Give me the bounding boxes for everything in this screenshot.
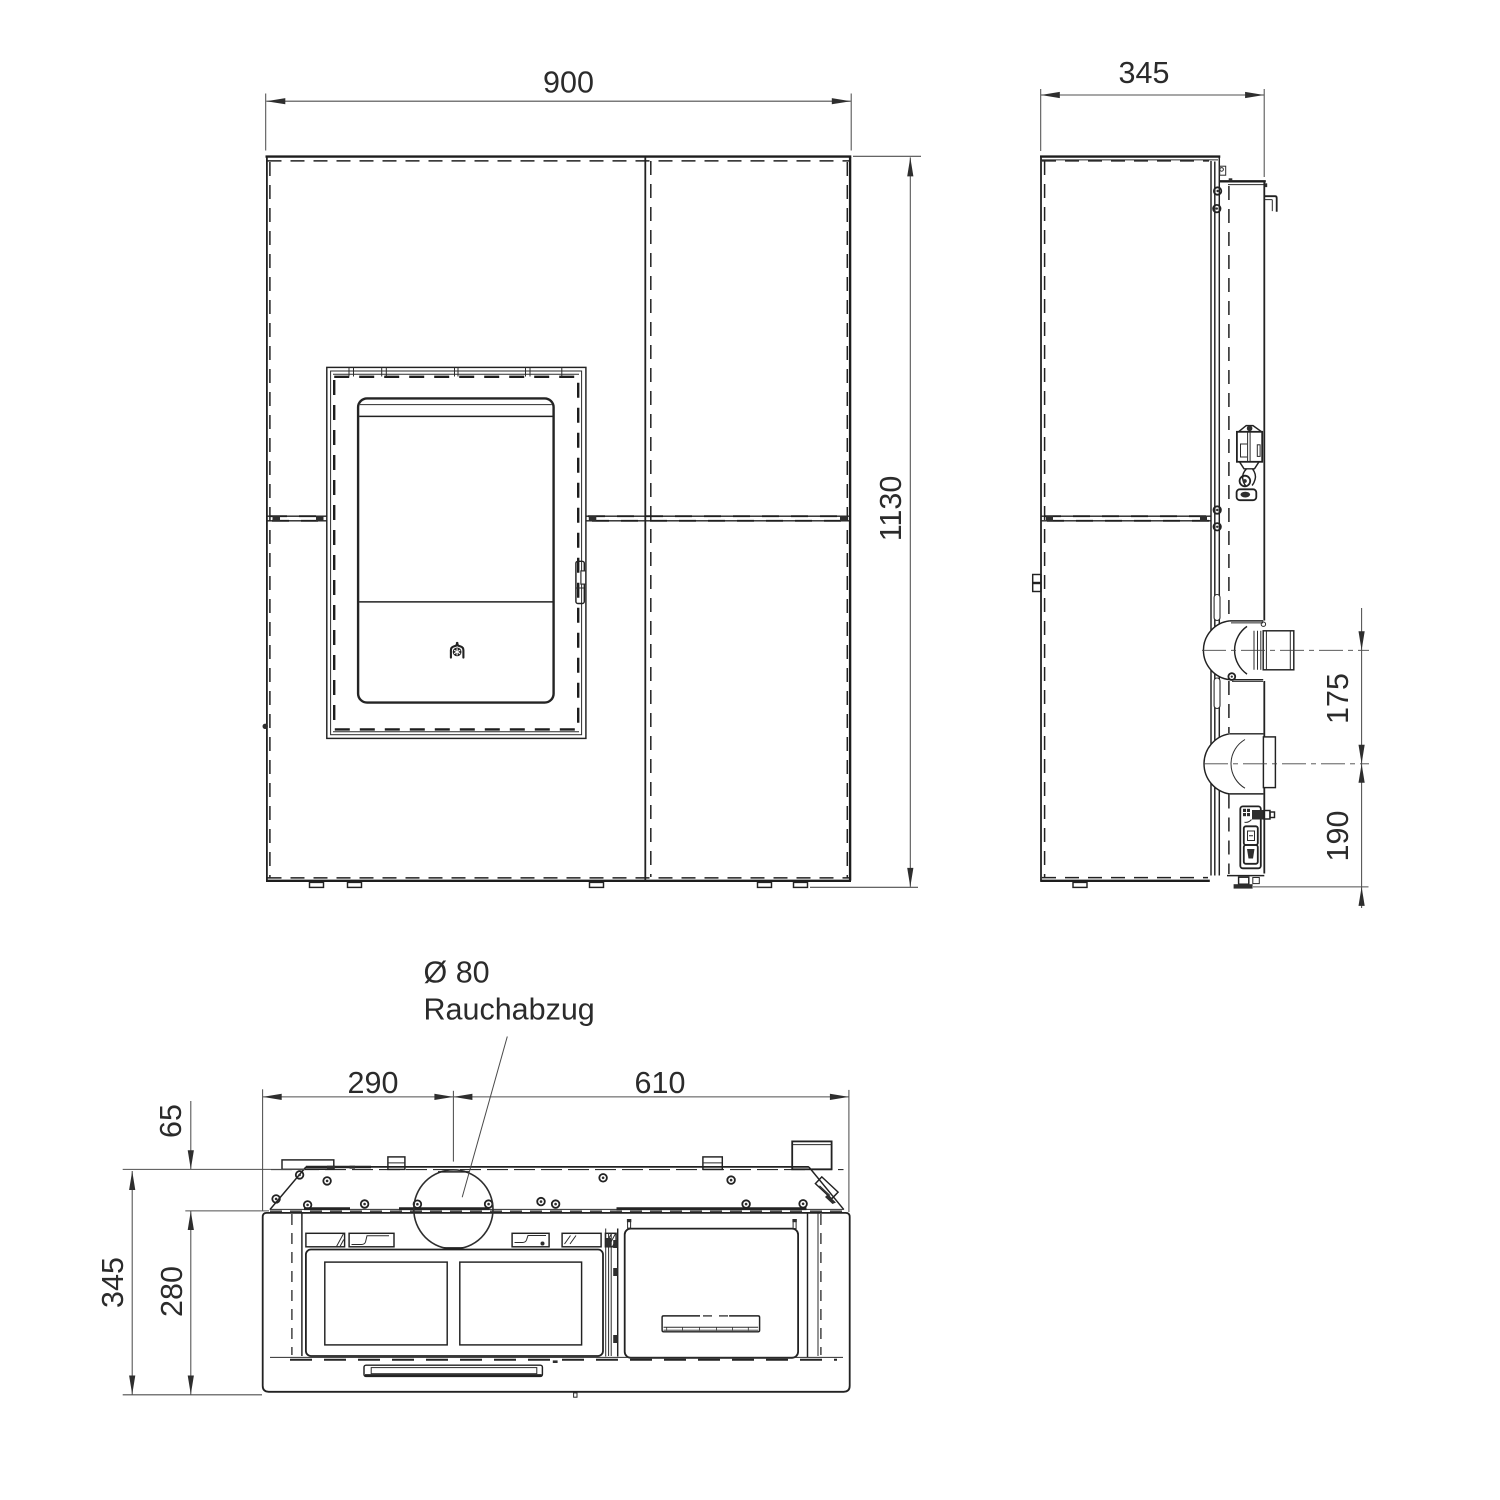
svg-text:Ø 80: Ø 80 bbox=[424, 956, 490, 990]
svg-text:290: 290 bbox=[348, 1066, 399, 1100]
svg-text:190: 190 bbox=[1321, 811, 1355, 862]
svg-text:345: 345 bbox=[1119, 56, 1170, 90]
svg-text:175: 175 bbox=[1321, 673, 1355, 724]
svg-text:Rauchabzug: Rauchabzug bbox=[424, 993, 595, 1027]
svg-text:610: 610 bbox=[635, 1066, 686, 1100]
svg-text:1130: 1130 bbox=[874, 476, 908, 542]
svg-text:345: 345 bbox=[96, 1257, 130, 1308]
svg-text:280: 280 bbox=[155, 1266, 189, 1317]
svg-text:65: 65 bbox=[154, 1104, 188, 1138]
svg-text:900: 900 bbox=[543, 66, 594, 100]
